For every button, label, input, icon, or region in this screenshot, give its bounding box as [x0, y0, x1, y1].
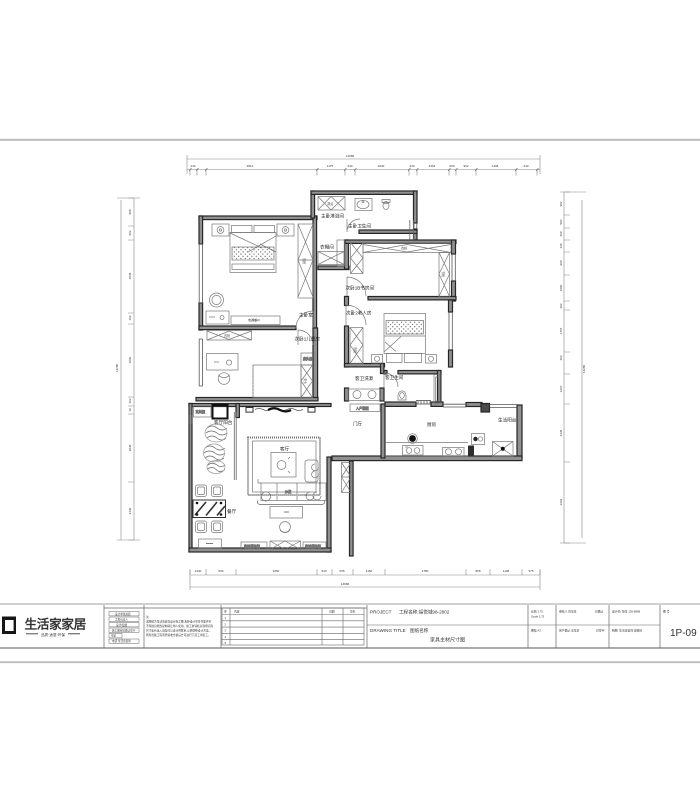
svg-text:14680: 14680 — [341, 582, 350, 586]
svg-text:电话 生活家装饰: 电话 生活家装饰 — [112, 639, 131, 643]
svg-text:客户确认 王某某: 客户确认 王某某 — [559, 629, 580, 633]
svg-text:902: 902 — [559, 201, 563, 206]
svg-text:床头柜: 床头柜 — [303, 356, 313, 361]
svg-text:808: 808 — [475, 569, 480, 573]
svg-text:工程负责人: 工程负责人 — [115, 617, 128, 621]
svg-text:客厅: 客厅 — [280, 446, 290, 453]
svg-text:PROJECT: PROJECT — [370, 610, 392, 615]
svg-text:厨房: 厨房 — [427, 421, 437, 428]
svg-text:1150: 1150 — [366, 569, 373, 573]
svg-text:302: 302 — [559, 303, 563, 308]
svg-text:440: 440 — [559, 243, 563, 248]
svg-text:家具主材尺寸图: 家具主材尺寸图 — [430, 637, 465, 644]
svg-text:3060: 3060 — [128, 356, 132, 363]
svg-text:502: 502 — [128, 230, 132, 235]
svg-text:图 号: 图 号 — [663, 610, 670, 614]
svg-text:14280: 14280 — [582, 364, 586, 373]
svg-text:审核人 刘某某: 审核人 刘某某 — [559, 610, 577, 614]
svg-text:收纳展示柜: 收纳展示柜 — [244, 543, 261, 548]
svg-text:462: 462 — [559, 355, 563, 360]
svg-text:502: 502 — [559, 219, 563, 224]
svg-text:门厅: 门厅 — [353, 421, 363, 428]
svg-text:2345: 2345 — [559, 429, 563, 436]
svg-text:玄关柜: 玄关柜 — [196, 409, 206, 414]
svg-text:注:: 注: — [146, 615, 150, 619]
svg-text:240: 240 — [523, 164, 528, 168]
svg-text:3048: 3048 — [128, 272, 132, 279]
svg-text:4: 4 — [225, 635, 227, 639]
svg-text:序: 序 — [224, 610, 227, 614]
svg-text:所有隐蔽工程须经验收合格后方可进行下道工序施工。: 所有隐蔽工程须经验收合格后方可进行下道工序施工。 — [146, 633, 211, 637]
svg-text:床头: 床头 — [303, 378, 308, 385]
svg-text:240: 240 — [409, 164, 414, 168]
svg-text:14680: 14680 — [346, 154, 355, 158]
svg-text:制图: 生活家装饰 成都分: 制图: 生活家装饰 成都分 — [612, 629, 643, 633]
svg-text:沙发: 沙发 — [285, 489, 292, 494]
svg-text:Scale 1:75: Scale 1:75 — [531, 615, 545, 619]
svg-text:30: 30 — [128, 408, 132, 412]
svg-text:内容: 内容 — [234, 610, 240, 614]
svg-text:536: 536 — [218, 569, 223, 573]
svg-text:4812: 4812 — [247, 164, 254, 168]
svg-text:日期: 日期 — [329, 610, 335, 614]
svg-text:240: 240 — [347, 164, 352, 168]
svg-text:客卫生间: 客卫生间 — [385, 374, 404, 381]
svg-text:3262: 3262 — [559, 498, 563, 505]
svg-text:2362: 2362 — [429, 164, 436, 168]
svg-text:已签字: 已签字 — [596, 629, 605, 633]
svg-text:主卧淋浴间: 主卧淋浴间 — [321, 213, 344, 220]
svg-text:1210: 1210 — [559, 385, 563, 392]
svg-text:1108: 1108 — [503, 569, 510, 573]
svg-text:书柜: 书柜 — [441, 271, 446, 278]
svg-text:DRAWING TITLE: DRAWING TITLE — [370, 628, 406, 633]
svg-text:设计单位资质: 设计单位资质 — [115, 612, 131, 616]
svg-text:审定: 审定 — [111, 634, 117, 638]
svg-text:575: 575 — [528, 569, 533, 573]
svg-text:客卫洗漱: 客卫洗漱 — [355, 375, 374, 382]
svg-text:电视柜: 电视柜 — [248, 318, 258, 323]
svg-text:入户鞋柜: 入户鞋柜 — [356, 406, 370, 411]
svg-text:衣柜: 衣柜 — [353, 347, 358, 354]
svg-text:签名: 签名 — [350, 610, 356, 614]
svg-text:次卧1B书房间: 次卧1B书房间 — [346, 285, 375, 292]
svg-text:3250: 3250 — [273, 569, 280, 573]
svg-text:2440: 2440 — [195, 569, 202, 573]
svg-text:施工图审核确认签字: 施工图审核确认签字 — [112, 628, 136, 632]
svg-text:240: 240 — [190, 164, 195, 168]
svg-text:3: 3 — [225, 629, 227, 633]
svg-text:960: 960 — [559, 260, 563, 265]
svg-text:2440: 2440 — [128, 507, 132, 514]
svg-text:540: 540 — [321, 569, 326, 573]
svg-text:460: 460 — [559, 231, 563, 236]
svg-text:1: 1 — [225, 616, 227, 620]
svg-text:2780: 2780 — [422, 569, 429, 573]
svg-text:本图纸为生活家装饰设计施工图,未经设计单位书面许可: 本图纸为生活家装饰设计施工图,未经设计单位书面许可 — [146, 620, 212, 624]
svg-text:图纸名称: 图纸名称 — [410, 627, 429, 634]
svg-text:1408: 1408 — [492, 164, 499, 168]
svg-text:次卧1儿童房: 次卧1儿童房 — [295, 336, 321, 343]
svg-text:14280: 14280 — [115, 363, 119, 372]
svg-text:客厅阳台: 客厅阳台 — [214, 419, 233, 426]
svg-text:淋浴: 淋浴 — [327, 201, 334, 206]
svg-text:生活家家居: 生活家家居 — [25, 617, 87, 632]
svg-text:主卧卫生间: 主卧卫生间 — [348, 223, 371, 230]
svg-text:600: 600 — [449, 164, 454, 168]
svg-text:次卧2老人房: 次卧2老人房 — [346, 310, 372, 317]
svg-text:衣柜: 衣柜 — [401, 246, 408, 251]
svg-text:已确认: 已确认 — [595, 610, 604, 614]
svg-text:635: 635 — [339, 569, 344, 573]
svg-text:设计/绘图: 设计/绘图 — [116, 623, 128, 627]
svg-text:尺寸如有出入请及时与设计师联系,以便调整设计方案。: 尺寸如有出入请及时与设计师联系,以便调整设计方案。 — [146, 629, 211, 633]
svg-text:主卧室: 主卧室 — [299, 312, 313, 319]
svg-text:5: 5 — [225, 641, 227, 645]
svg-text:2848: 2848 — [128, 444, 132, 451]
svg-text:衣帽间: 衣帽间 — [320, 244, 334, 251]
svg-text:402: 402 — [128, 315, 132, 320]
svg-text:生活阳台: 生活阳台 — [498, 417, 517, 424]
svg-text:1060: 1060 — [559, 284, 563, 291]
svg-text:2: 2 — [225, 623, 227, 627]
svg-text:1175: 1175 — [327, 164, 334, 168]
svg-text:设计师: 张某 139-8888: 设计师: 张某 139-8888 — [612, 610, 641, 614]
svg-text:衣柜: 衣柜 — [224, 333, 231, 338]
svg-text:不得擅自修改复制转让他人使用。施工前请核对现场实际: 不得擅自修改复制转让他人使用。施工前请核对现场实际 — [146, 624, 213, 628]
svg-text:2040: 2040 — [378, 164, 385, 168]
svg-text:衣柜: 衣柜 — [302, 258, 307, 265]
svg-text:302: 302 — [128, 398, 132, 403]
svg-text:962: 962 — [463, 164, 468, 168]
svg-text:908: 908 — [128, 209, 132, 214]
svg-text:品质·适居·环保: 品质·适居·环保 — [41, 632, 65, 637]
svg-text:1P-09: 1P-09 — [670, 628, 697, 639]
svg-text:工程名称:福悦城98-2802: 工程名称:福悦城98-2802 — [399, 609, 450, 616]
svg-text:1715: 1715 — [559, 327, 563, 334]
svg-text:餐厅: 餐厅 — [227, 508, 237, 515]
svg-text:收纳展示柜: 收纳展示柜 — [305, 543, 322, 548]
svg-text:比例 1:75: 比例 1:75 — [531, 610, 543, 614]
svg-text:图幅 A3: 图幅 A3 — [531, 629, 541, 633]
